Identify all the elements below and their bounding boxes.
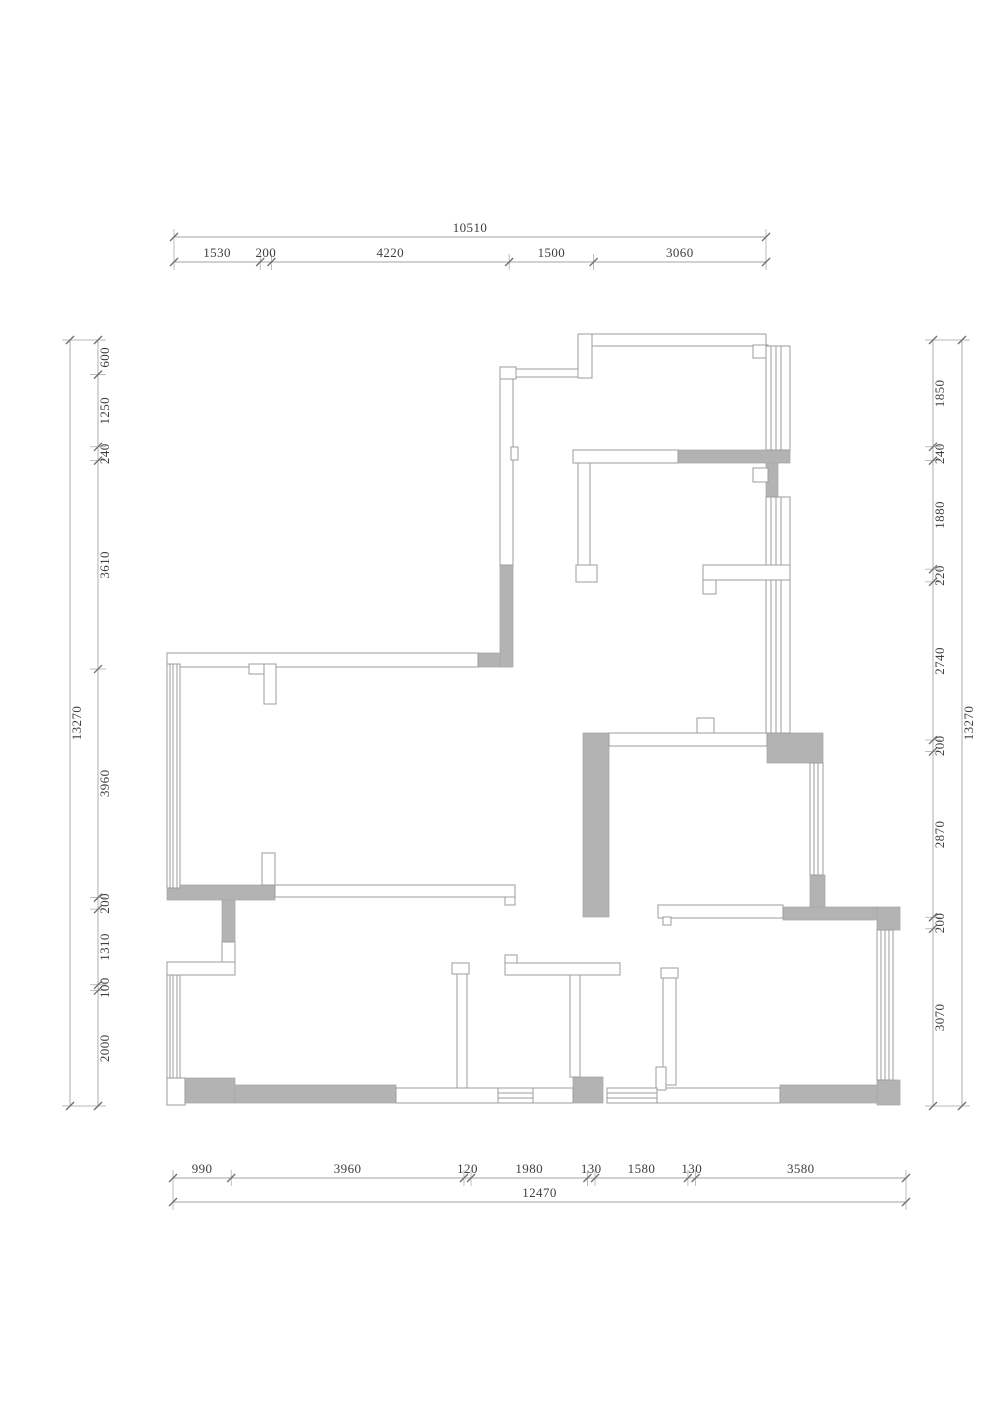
wall-segment [222,942,235,963]
dim-label: 1880 [932,501,947,529]
wall-hatch [767,733,823,763]
wall-segment [511,447,518,460]
wall-hatch [573,1077,603,1103]
dim-label: 3960 [334,1161,362,1176]
wall-segment [578,334,766,346]
wall-segment [609,733,767,746]
wall-segment [396,1088,498,1103]
wall-hatch [167,885,275,900]
wall-segment [275,885,515,897]
wall-segment [656,1067,666,1090]
wall-segment [500,379,513,565]
window [498,1088,533,1103]
window [607,1088,657,1103]
dim-label: 4220 [376,245,404,260]
dim-label: 1500 [538,245,566,260]
wall-segment [167,962,235,975]
wall-segment [452,963,469,974]
window [766,346,790,450]
wall-segment [697,718,714,733]
wall-segment [658,905,783,918]
dim-label: 240 [97,443,112,464]
dim-label: 1980 [515,1161,543,1176]
wall-segment [661,968,678,978]
floor-plan-svg: 153020042201500306010510 990396012019801… [0,0,1000,1428]
dim-label: 130 [681,1161,702,1176]
dim-label: 1250 [97,397,112,425]
wall-segment [657,1088,780,1103]
wall-hatch [783,907,877,920]
dim-label: 990 [192,1161,213,1176]
dim-label: 3060 [666,245,694,260]
wall-hatch [185,1078,235,1103]
dim-label: 3580 [787,1161,815,1176]
dimension-chain-bottom: 990396012019801301580130358012470 [169,1161,910,1210]
dim-label: 100 [97,977,112,998]
dim-label: 2000 [97,1034,112,1062]
dim-total-label: 10510 [453,220,488,235]
wall-segment [570,975,580,1077]
wall-segment [753,468,768,482]
wall-segment [167,1078,185,1105]
dim-label: 1580 [628,1161,656,1176]
dimension-chain-right: 1850240188022027402002870200307013270 [925,336,976,1110]
wall-hatch [235,1085,396,1103]
dim-label: 200 [97,893,112,914]
wall-segment [516,369,578,377]
dim-label: 3070 [932,1004,947,1032]
dimension-chain-left: 6001250240361039602001310100200013270 [62,336,112,1110]
dim-label: 200 [932,913,947,934]
wall-segment [578,463,590,565]
floor-plan-canvas: 153020042201500306010510 990396012019801… [0,0,1000,1428]
wall-segment [262,853,275,885]
wall-hatch [222,900,235,942]
wall-hatch [810,875,825,907]
dim-label: 2870 [932,821,947,849]
wall-hatch [780,1085,877,1103]
wall-segment [249,664,265,674]
dim-total-label: 12470 [522,1185,557,1200]
wall-segment [167,653,478,667]
wall-segment [457,974,467,1088]
wall-segment [573,450,678,463]
wall-segment [264,664,276,704]
wall-segment [505,963,620,975]
dim-total-label: 13270 [69,706,84,741]
dim-label: 2740 [932,647,947,675]
wall-segment [576,565,597,582]
dim-label: 240 [932,443,947,464]
wall-segment [578,334,592,378]
window [810,763,823,875]
wall-hatch [877,1080,900,1105]
wall-hatch [877,907,900,930]
wall-segment [505,955,517,963]
dim-label: 600 [97,347,112,368]
wall-segment [663,917,671,925]
dim-total-label: 13270 [961,706,976,741]
dim-label: 200 [255,245,276,260]
dim-label: 220 [932,565,947,586]
wall-segment [703,565,790,580]
window [766,497,790,565]
wall-segment [533,1088,573,1103]
dim-label: 3610 [97,551,112,579]
wall-hatch [678,450,790,463]
dim-label: 3960 [97,770,112,798]
wall-hatch [583,733,609,917]
dim-label: 120 [457,1161,478,1176]
wall-hatch [500,565,513,667]
dim-label: 200 [932,735,947,756]
window [766,580,790,733]
dimension-chain-top: 153020042201500306010510 [170,220,770,270]
dim-label: 1310 [97,933,112,961]
wall-segment [703,580,716,594]
dim-label: 130 [581,1161,602,1176]
dim-label: 1530 [203,245,231,260]
wall-segment [500,367,516,379]
dim-label: 1850 [932,380,947,408]
wall-segment [505,897,515,905]
